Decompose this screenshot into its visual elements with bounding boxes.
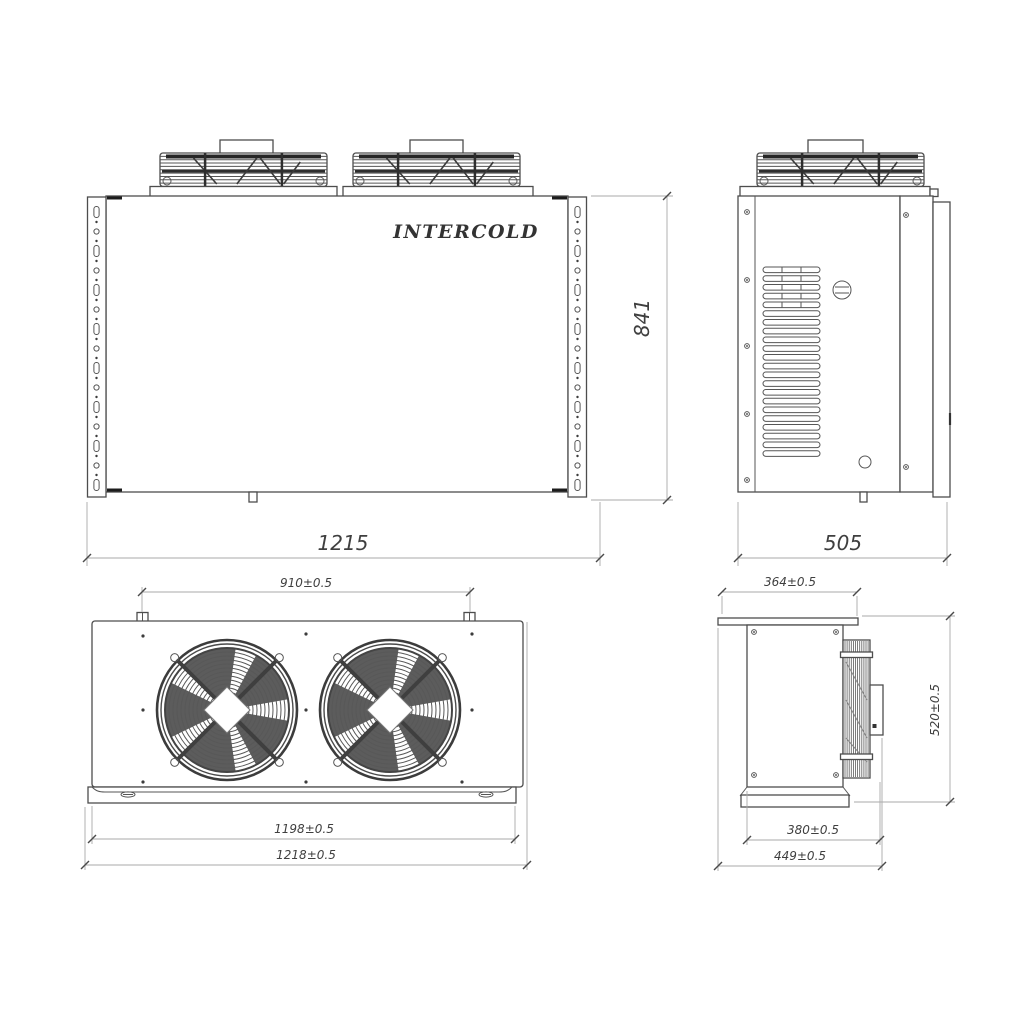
fan-plinth xyxy=(150,187,337,197)
rivet xyxy=(304,632,307,635)
bracket-dot xyxy=(95,338,97,340)
rivet xyxy=(141,634,144,637)
rivet xyxy=(460,780,463,783)
profile-view xyxy=(718,618,883,807)
fan-top-left xyxy=(150,140,337,197)
top-view xyxy=(88,613,523,804)
dim-profile-top-depth: 364±0.5 xyxy=(764,575,816,589)
fan-guard-stack xyxy=(160,153,327,187)
side-rear-strip xyxy=(933,202,950,497)
bracket-dot xyxy=(576,396,578,398)
fan-hub-band xyxy=(763,155,918,159)
bracket-dot xyxy=(576,240,578,242)
base-rail xyxy=(88,787,516,803)
fan-guard-stack xyxy=(353,153,520,187)
dim-front-height: 841 xyxy=(630,299,654,337)
fan-plinth xyxy=(343,187,533,197)
bracket-dot xyxy=(95,455,97,457)
screw-center xyxy=(835,631,837,633)
fan-top-right xyxy=(343,140,533,197)
coil-bracket-top xyxy=(841,652,873,658)
bracket-dot xyxy=(95,260,97,262)
screw-center xyxy=(746,211,748,213)
dim-profile-height: 520±0.5 xyxy=(928,684,942,736)
fan-top xyxy=(740,140,938,197)
drain-tab xyxy=(249,492,257,502)
technical-drawing: INTERCOLD xyxy=(0,0,1024,1024)
fan-plinth xyxy=(740,187,930,197)
fan-guard-stack xyxy=(757,153,924,187)
dim-top-base-length: 1198±0.5 xyxy=(274,822,334,836)
screw-center xyxy=(746,279,748,281)
bracket-dot xyxy=(95,416,97,418)
dim-front-width: 1215 xyxy=(318,531,369,555)
bracket-dot xyxy=(576,338,578,340)
rivet xyxy=(304,708,307,711)
bottom-channel xyxy=(741,795,849,807)
screw-center xyxy=(835,774,837,776)
drawing-svg: INTERCOLD xyxy=(0,0,1024,1024)
bracket-dot xyxy=(576,318,578,320)
bracket-dot xyxy=(576,260,578,262)
fan-motor-mount xyxy=(220,140,273,154)
screw-center xyxy=(905,466,907,468)
fan-band xyxy=(162,170,325,173)
top-flange xyxy=(718,618,858,625)
screw-center xyxy=(905,214,907,216)
bracket-dot xyxy=(95,474,97,476)
bracket-dot xyxy=(576,357,578,359)
dim-profile-base-depth: 380±0.5 xyxy=(787,823,839,837)
corner-mark xyxy=(107,489,122,492)
brand-logo: INTERCOLD xyxy=(392,221,539,243)
dim-top-fan-spacing: 910±0.5 xyxy=(280,576,332,590)
screw-center xyxy=(746,413,748,415)
screw-center xyxy=(753,774,755,776)
rivet xyxy=(141,780,144,783)
corner-mark xyxy=(552,197,567,200)
fan-band xyxy=(759,170,922,173)
bracket-dot xyxy=(576,435,578,437)
fan-motor-mount xyxy=(808,140,863,154)
side-view xyxy=(738,140,950,502)
side-rear-panel xyxy=(900,196,933,492)
profile-body-panel xyxy=(747,625,843,787)
corner-mark xyxy=(107,197,122,200)
bracket-dot xyxy=(576,416,578,418)
bracket-dot xyxy=(95,299,97,301)
rivet xyxy=(470,708,473,711)
bracket-dot xyxy=(576,299,578,301)
bracket-dot xyxy=(95,318,97,320)
front-view: INTERCOLD xyxy=(88,140,587,502)
bracket-dot xyxy=(95,435,97,437)
bracket-dot xyxy=(576,377,578,379)
bracket-dot xyxy=(95,221,97,223)
dim-profile-overall-depth: 449±0.5 xyxy=(774,849,826,863)
fan-motor-mount xyxy=(410,140,463,154)
fan-hub-band xyxy=(166,155,321,159)
junction-box-screw xyxy=(873,724,877,728)
fan-band xyxy=(355,170,518,173)
bracket-dot xyxy=(95,240,97,242)
bracket-dot xyxy=(95,357,97,359)
screw-center xyxy=(746,479,748,481)
bracket-dot xyxy=(576,221,578,223)
rivet xyxy=(304,780,307,783)
bracket-dot xyxy=(95,396,97,398)
rivet xyxy=(470,632,473,635)
bracket-dot xyxy=(95,279,97,281)
drain-tab xyxy=(860,492,867,502)
dim-side-depth: 505 xyxy=(824,531,862,555)
corner-mark xyxy=(552,489,567,492)
bracket-dot xyxy=(576,474,578,476)
screw-center xyxy=(753,631,755,633)
fan-hub-band xyxy=(359,155,514,159)
coil-bracket-bottom xyxy=(841,754,873,760)
bracket-dot xyxy=(576,455,578,457)
screw-center xyxy=(746,345,748,347)
rivet xyxy=(141,708,144,711)
dim-top-overall-length: 1218±0.5 xyxy=(276,848,336,862)
bracket-dot xyxy=(95,377,97,379)
bracket-dot xyxy=(576,279,578,281)
